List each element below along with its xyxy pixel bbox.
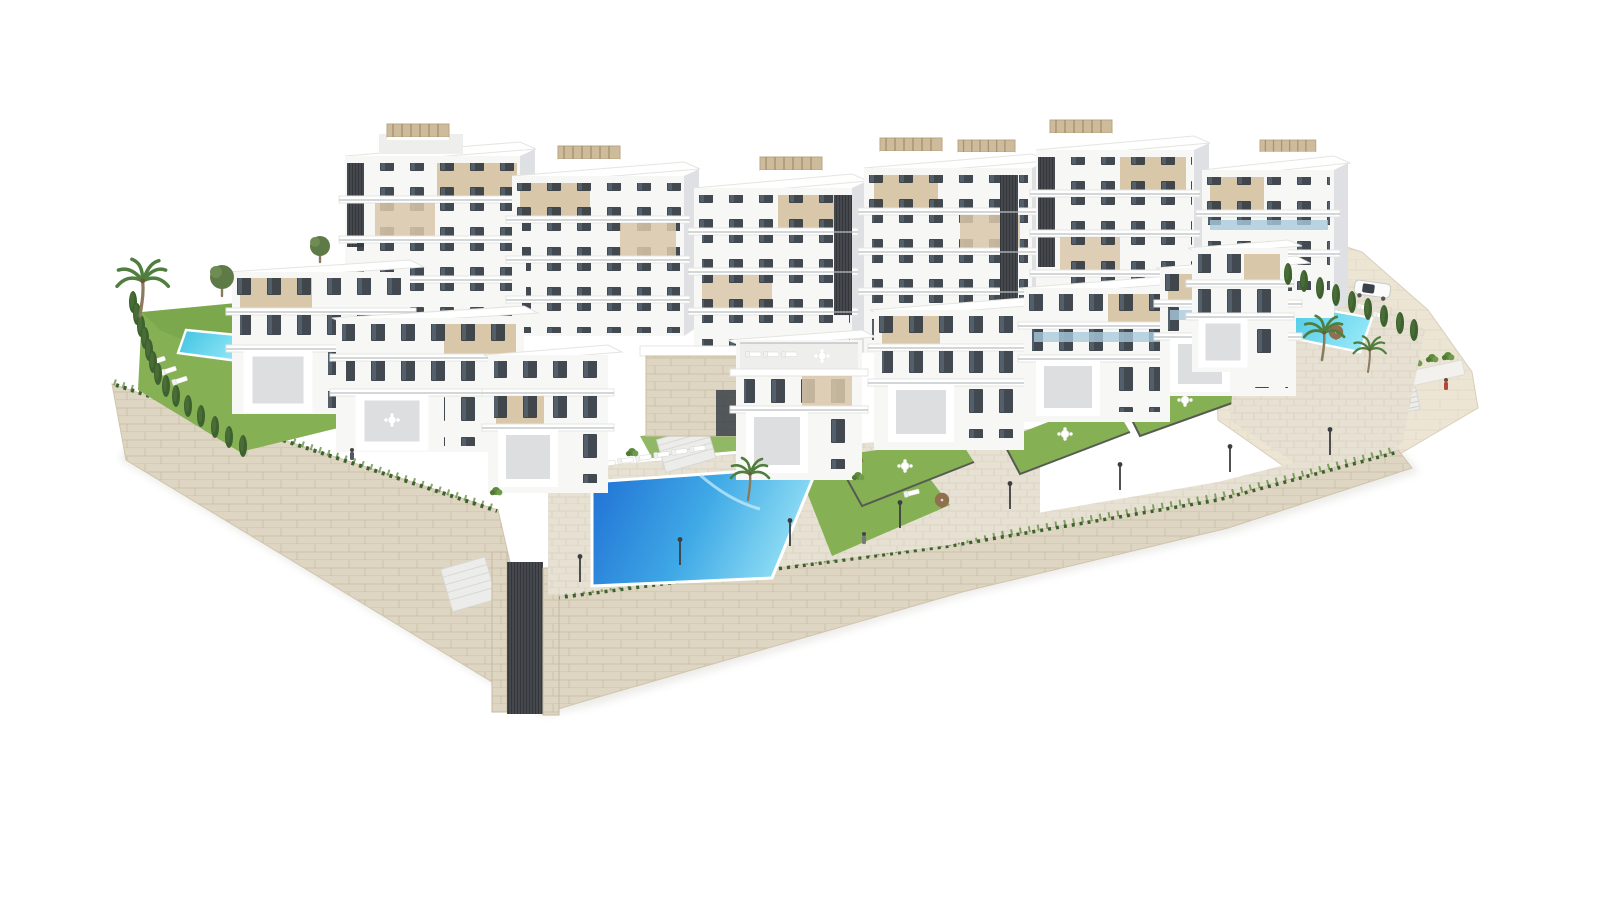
rooftop-pergola	[760, 157, 822, 173]
cypress-tree	[197, 405, 205, 427]
stair-core-slats	[1000, 175, 1018, 305]
rooftop-pergola	[1260, 140, 1316, 154]
person	[1444, 378, 1448, 390]
villa-8	[1186, 240, 1302, 372]
cypress-tree	[211, 416, 219, 438]
glass-railing	[1210, 220, 1328, 230]
cypress-tree	[172, 385, 180, 407]
rooftop-pergola	[558, 146, 620, 162]
cypress-tree	[1364, 298, 1372, 320]
window-band	[342, 324, 520, 354]
cypress-tree	[1316, 277, 1324, 299]
portal-shadow	[1040, 362, 1096, 412]
window-band	[514, 183, 682, 216]
rooftop-pergola	[387, 124, 449, 140]
cypress-tree	[1396, 312, 1404, 334]
window-band	[1198, 287, 1282, 313]
apartment-block-2	[506, 146, 700, 336]
window-band	[1254, 320, 1284, 364]
sun-lounger	[782, 351, 798, 357]
round-tree	[210, 265, 234, 296]
window-band	[494, 396, 604, 424]
portal-shadow	[502, 431, 554, 483]
window-band	[568, 431, 604, 483]
facade-beige-panel	[1244, 254, 1280, 280]
portal-shadow	[892, 386, 950, 438]
balcony-slab	[730, 369, 868, 376]
sun-lounger	[746, 351, 762, 357]
facade-beige-panel	[802, 376, 852, 406]
window-band	[702, 235, 850, 268]
street-lamp	[1118, 462, 1123, 490]
rooftop-pergola	[958, 140, 1015, 155]
facade-beige-panel	[375, 203, 435, 236]
rooftop-pergola	[1050, 120, 1112, 136]
person	[862, 532, 866, 544]
cypress-tree	[1284, 263, 1292, 285]
gate-pillar	[492, 552, 507, 712]
cypress-tree	[239, 435, 247, 457]
window-band	[526, 263, 680, 296]
stair-core-slats	[347, 163, 364, 247]
clubhouse	[640, 346, 744, 436]
window-band	[702, 275, 850, 308]
cypress-tree	[1410, 319, 1418, 341]
residential-complex-render: Aerial 3D render — modern white resident…	[0, 0, 1600, 900]
round-tree	[310, 236, 330, 262]
window-band	[1112, 362, 1160, 412]
villa-5	[868, 298, 1038, 450]
window-band	[357, 243, 517, 276]
cypress-tree	[1348, 291, 1356, 313]
window-band	[1206, 177, 1330, 210]
window-band	[494, 361, 604, 389]
glass-railing	[1034, 332, 1160, 342]
shrub	[626, 448, 639, 456]
clubhouse-roof	[640, 346, 744, 356]
window-band	[1028, 294, 1166, 322]
cypress-tree	[154, 363, 162, 385]
cypress-tree	[1332, 284, 1340, 306]
facade-beige-panel	[620, 223, 676, 256]
stair-core-slats	[1038, 157, 1055, 267]
window-band	[522, 303, 680, 333]
street-lamp	[1228, 444, 1233, 472]
sun-lounger	[764, 351, 780, 357]
cypress-tree	[184, 395, 192, 417]
window-band	[698, 195, 850, 228]
person	[350, 448, 354, 460]
gate-door-slats	[507, 562, 543, 714]
window-band	[236, 278, 406, 308]
cypress-tree	[162, 375, 170, 397]
stair-core-slats	[834, 195, 852, 315]
villa-4	[728, 330, 876, 480]
portal-shadow	[248, 352, 308, 408]
villa-3	[482, 345, 622, 495]
palm-tree	[117, 259, 168, 316]
rooftop-pergola	[880, 138, 942, 154]
window-band	[878, 316, 1020, 344]
villa-6	[1018, 276, 1184, 422]
window-band	[1058, 197, 1192, 230]
portal-shadow	[1202, 320, 1244, 364]
window-band	[882, 351, 1016, 379]
cypress-tree	[1300, 270, 1308, 292]
window-band	[966, 386, 1016, 438]
cypress-tree	[225, 426, 233, 448]
cypress-tree	[1380, 305, 1388, 327]
window-band	[818, 413, 854, 469]
window-band	[1058, 157, 1192, 190]
render-canvas: Aerial 3D render — modern white resident…	[0, 0, 1600, 900]
window-band	[1058, 237, 1192, 270]
window-band	[347, 163, 518, 196]
